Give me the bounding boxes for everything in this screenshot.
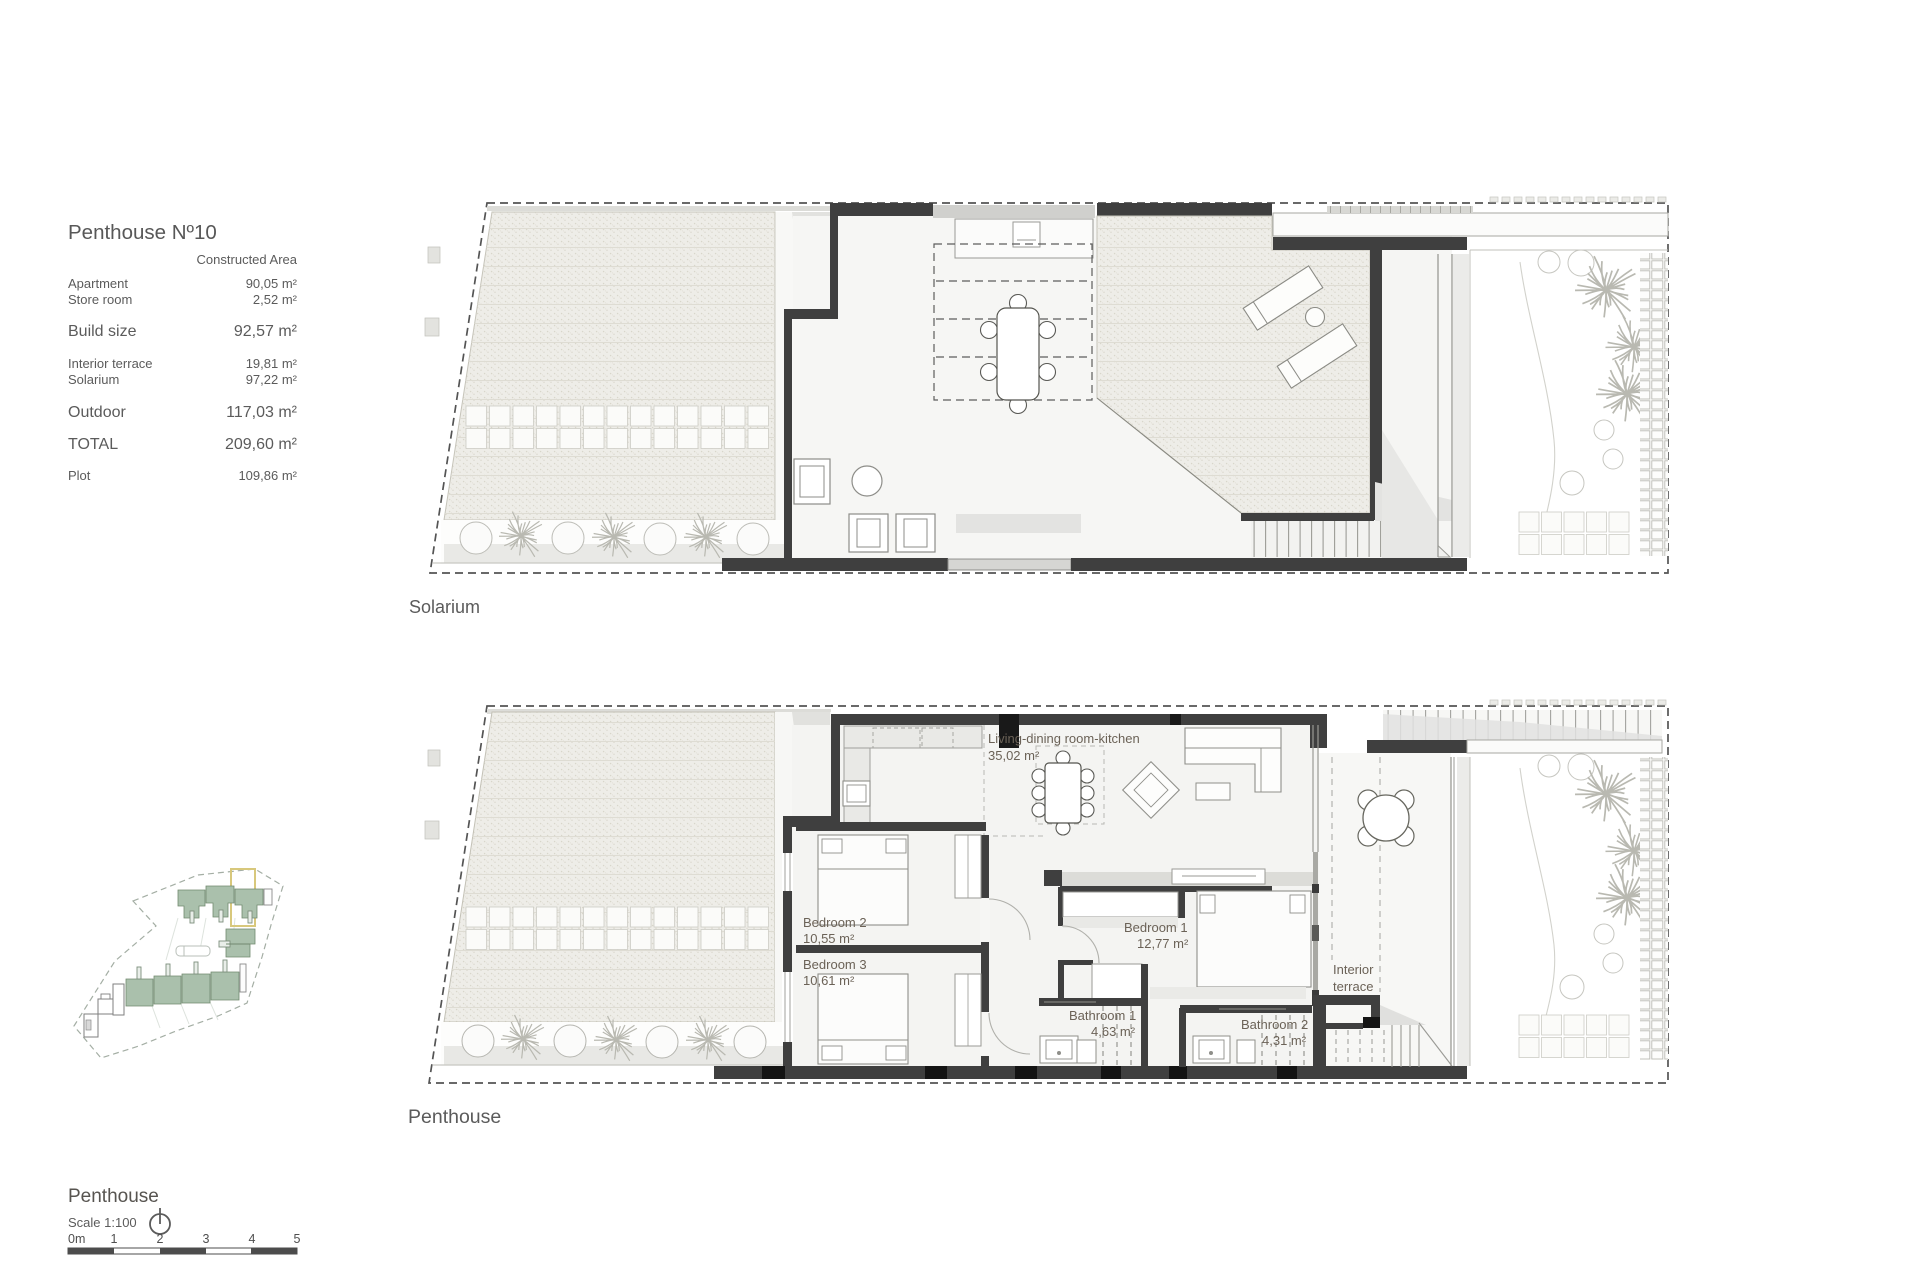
svg-text:Living-dining room-kitchen: Living-dining room-kitchen: [988, 731, 1140, 746]
svg-text:3: 3: [203, 1232, 210, 1246]
svg-text:1: 1: [111, 1232, 118, 1246]
svg-text:Penthouse Nº10: Penthouse Nº10: [68, 221, 217, 244]
svg-text:90,05 m²: 90,05 m²: [246, 276, 298, 291]
svg-text:Interior terrace: Interior terrace: [68, 356, 153, 371]
svg-text:Interior: Interior: [1333, 962, 1374, 977]
svg-text:Bedroom 1: Bedroom 1: [1124, 920, 1188, 935]
svg-text:35,02 m²: 35,02 m²: [988, 748, 1040, 763]
svg-text:97,22 m²: 97,22 m²: [246, 372, 298, 387]
svg-text:10,55 m²: 10,55 m²: [803, 931, 855, 946]
svg-text:109,86 m²: 109,86 m²: [238, 468, 297, 483]
svg-text:4: 4: [249, 1232, 256, 1246]
svg-text:Plot: Plot: [68, 468, 91, 483]
svg-text:19,81 m²: 19,81 m²: [246, 356, 298, 371]
svg-text:10,61 m²: 10,61 m²: [803, 973, 855, 988]
svg-text:Penthouse: Penthouse: [68, 1186, 159, 1207]
svg-text:5: 5: [294, 1232, 301, 1246]
svg-text:Bedroom 2: Bedroom 2: [803, 915, 867, 930]
svg-text:Penthouse: Penthouse: [408, 1106, 501, 1128]
svg-text:92,57 m²: 92,57 m²: [234, 323, 298, 340]
svg-text:Store room: Store room: [68, 292, 132, 307]
svg-text:4,63 m²: 4,63 m²: [1091, 1024, 1136, 1039]
svg-text:TOTAL: TOTAL: [68, 436, 118, 453]
svg-text:Scale 1:100: Scale 1:100: [68, 1215, 137, 1230]
svg-text:Build size: Build size: [68, 323, 137, 340]
svg-text:209,60 m²: 209,60 m²: [225, 436, 298, 453]
svg-text:Bedroom 3: Bedroom 3: [803, 957, 867, 972]
svg-text:terrace: terrace: [1333, 979, 1373, 994]
svg-text:Outdoor: Outdoor: [68, 404, 126, 421]
svg-text:0m: 0m: [68, 1232, 85, 1246]
svg-text:Apartment: Apartment: [68, 276, 128, 291]
svg-text:117,03 m²: 117,03 m²: [226, 404, 298, 421]
svg-text:2: 2: [157, 1232, 164, 1246]
svg-text:12,77 m²: 12,77 m²: [1137, 936, 1189, 951]
svg-text:2,52 m²: 2,52 m²: [253, 292, 298, 307]
svg-text:Bathroom 1: Bathroom 1: [1069, 1008, 1136, 1023]
svg-text:Solarium: Solarium: [68, 372, 119, 387]
svg-text:Constructed Area: Constructed Area: [197, 252, 298, 267]
svg-text:4,31 m²: 4,31 m²: [1262, 1033, 1307, 1048]
svg-text:Bathroom 2: Bathroom 2: [1241, 1017, 1308, 1032]
svg-text:Solarium: Solarium: [409, 597, 480, 617]
